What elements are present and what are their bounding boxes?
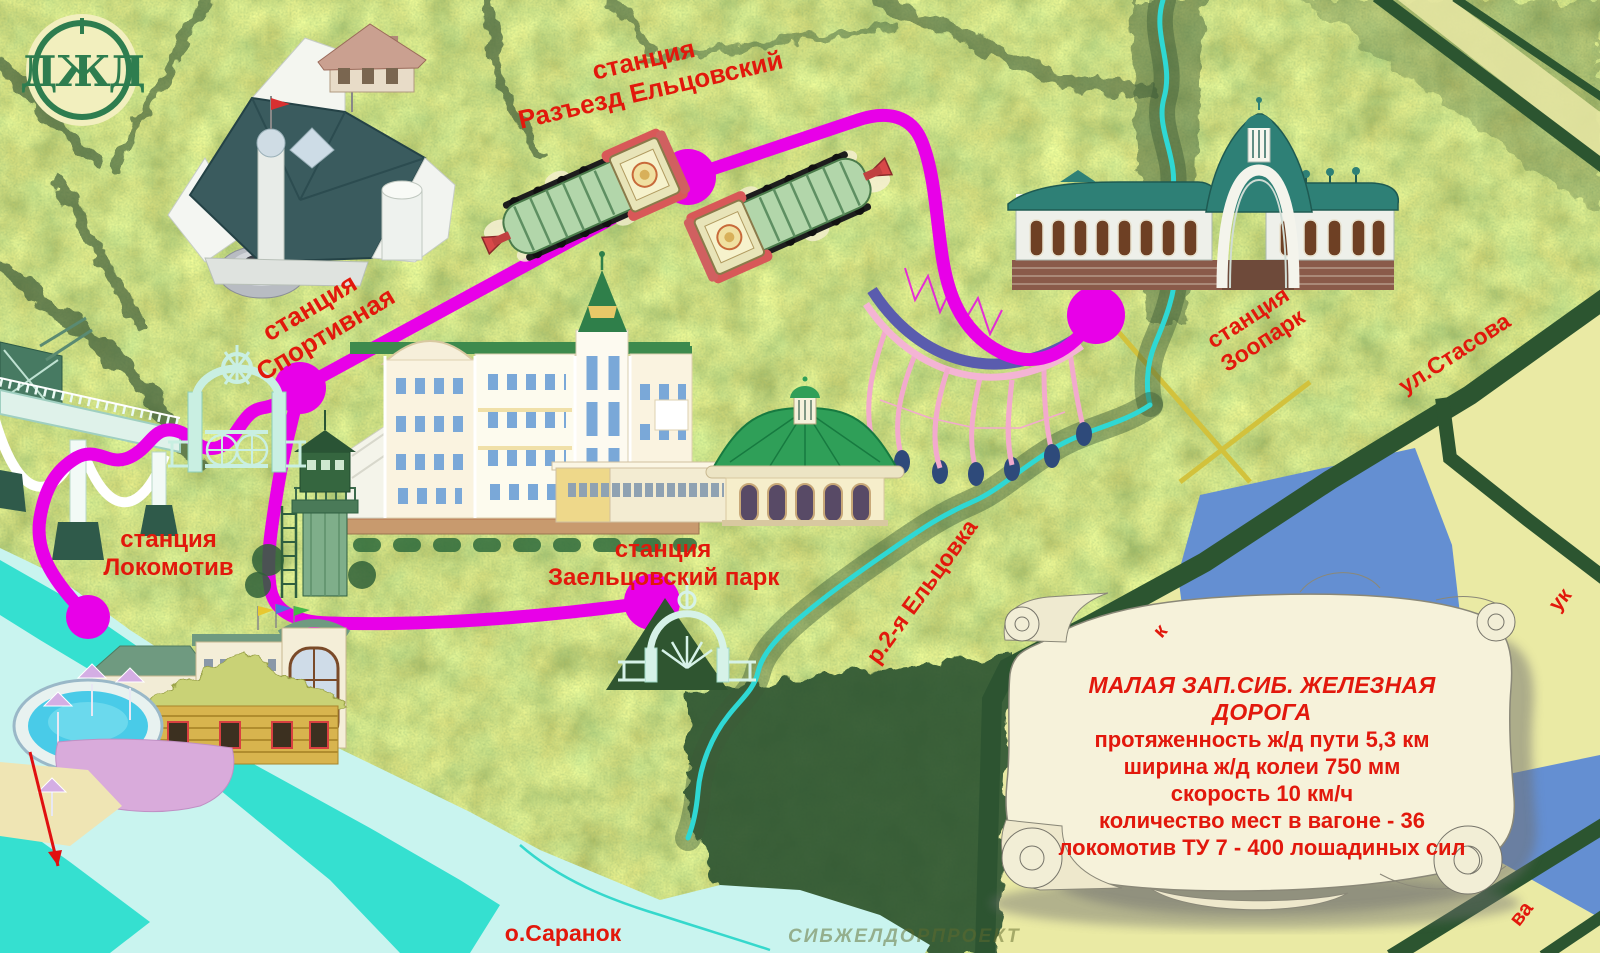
station-dot-lokomotiv: [66, 595, 110, 639]
scroll-line: количество мест в вагоне - 36: [1038, 807, 1486, 834]
scroll-title: МАЛАЯ ЗАП.СИБ. ЖЕЛЕЗНАЯ ДОРОГА: [1038, 672, 1486, 726]
scroll-line: протяженность ж/д пути 5,3 км: [1038, 726, 1486, 753]
scroll-line: ширина ж/д колеи 750 мм: [1038, 753, 1486, 780]
watermark: СИБЖЕЛДОРПРОЕКТ: [788, 926, 1021, 948]
scroll-line: скорость 10 км/ч: [1038, 780, 1486, 807]
label-station-zaeltsovsky: станция Заельцовский парк: [548, 536, 778, 593]
label-station-lokomotiv: станция Локомотив: [96, 526, 241, 583]
scroll-line: локомотив ТУ 7 - 400 лошадиных сил: [1038, 834, 1486, 861]
label-line: станция: [96, 526, 241, 554]
info-scroll-text: МАЛАЯ ЗАП.СИБ. ЖЕЛЕЗНАЯ ДОРОГА протяженн…: [1038, 672, 1486, 861]
label-line: Локомотив: [96, 554, 241, 582]
label-line: станция: [548, 536, 778, 564]
railway-map: ДЖД станция Разъезд Ельцовский станция С…: [0, 0, 1600, 953]
djd-monogram: ДЖД: [20, 47, 144, 96]
label-line: Заельцовский парк: [548, 564, 778, 592]
label-island-saranok: о.Саранок: [498, 920, 628, 947]
station-dot-zoopark: [1067, 286, 1125, 344]
